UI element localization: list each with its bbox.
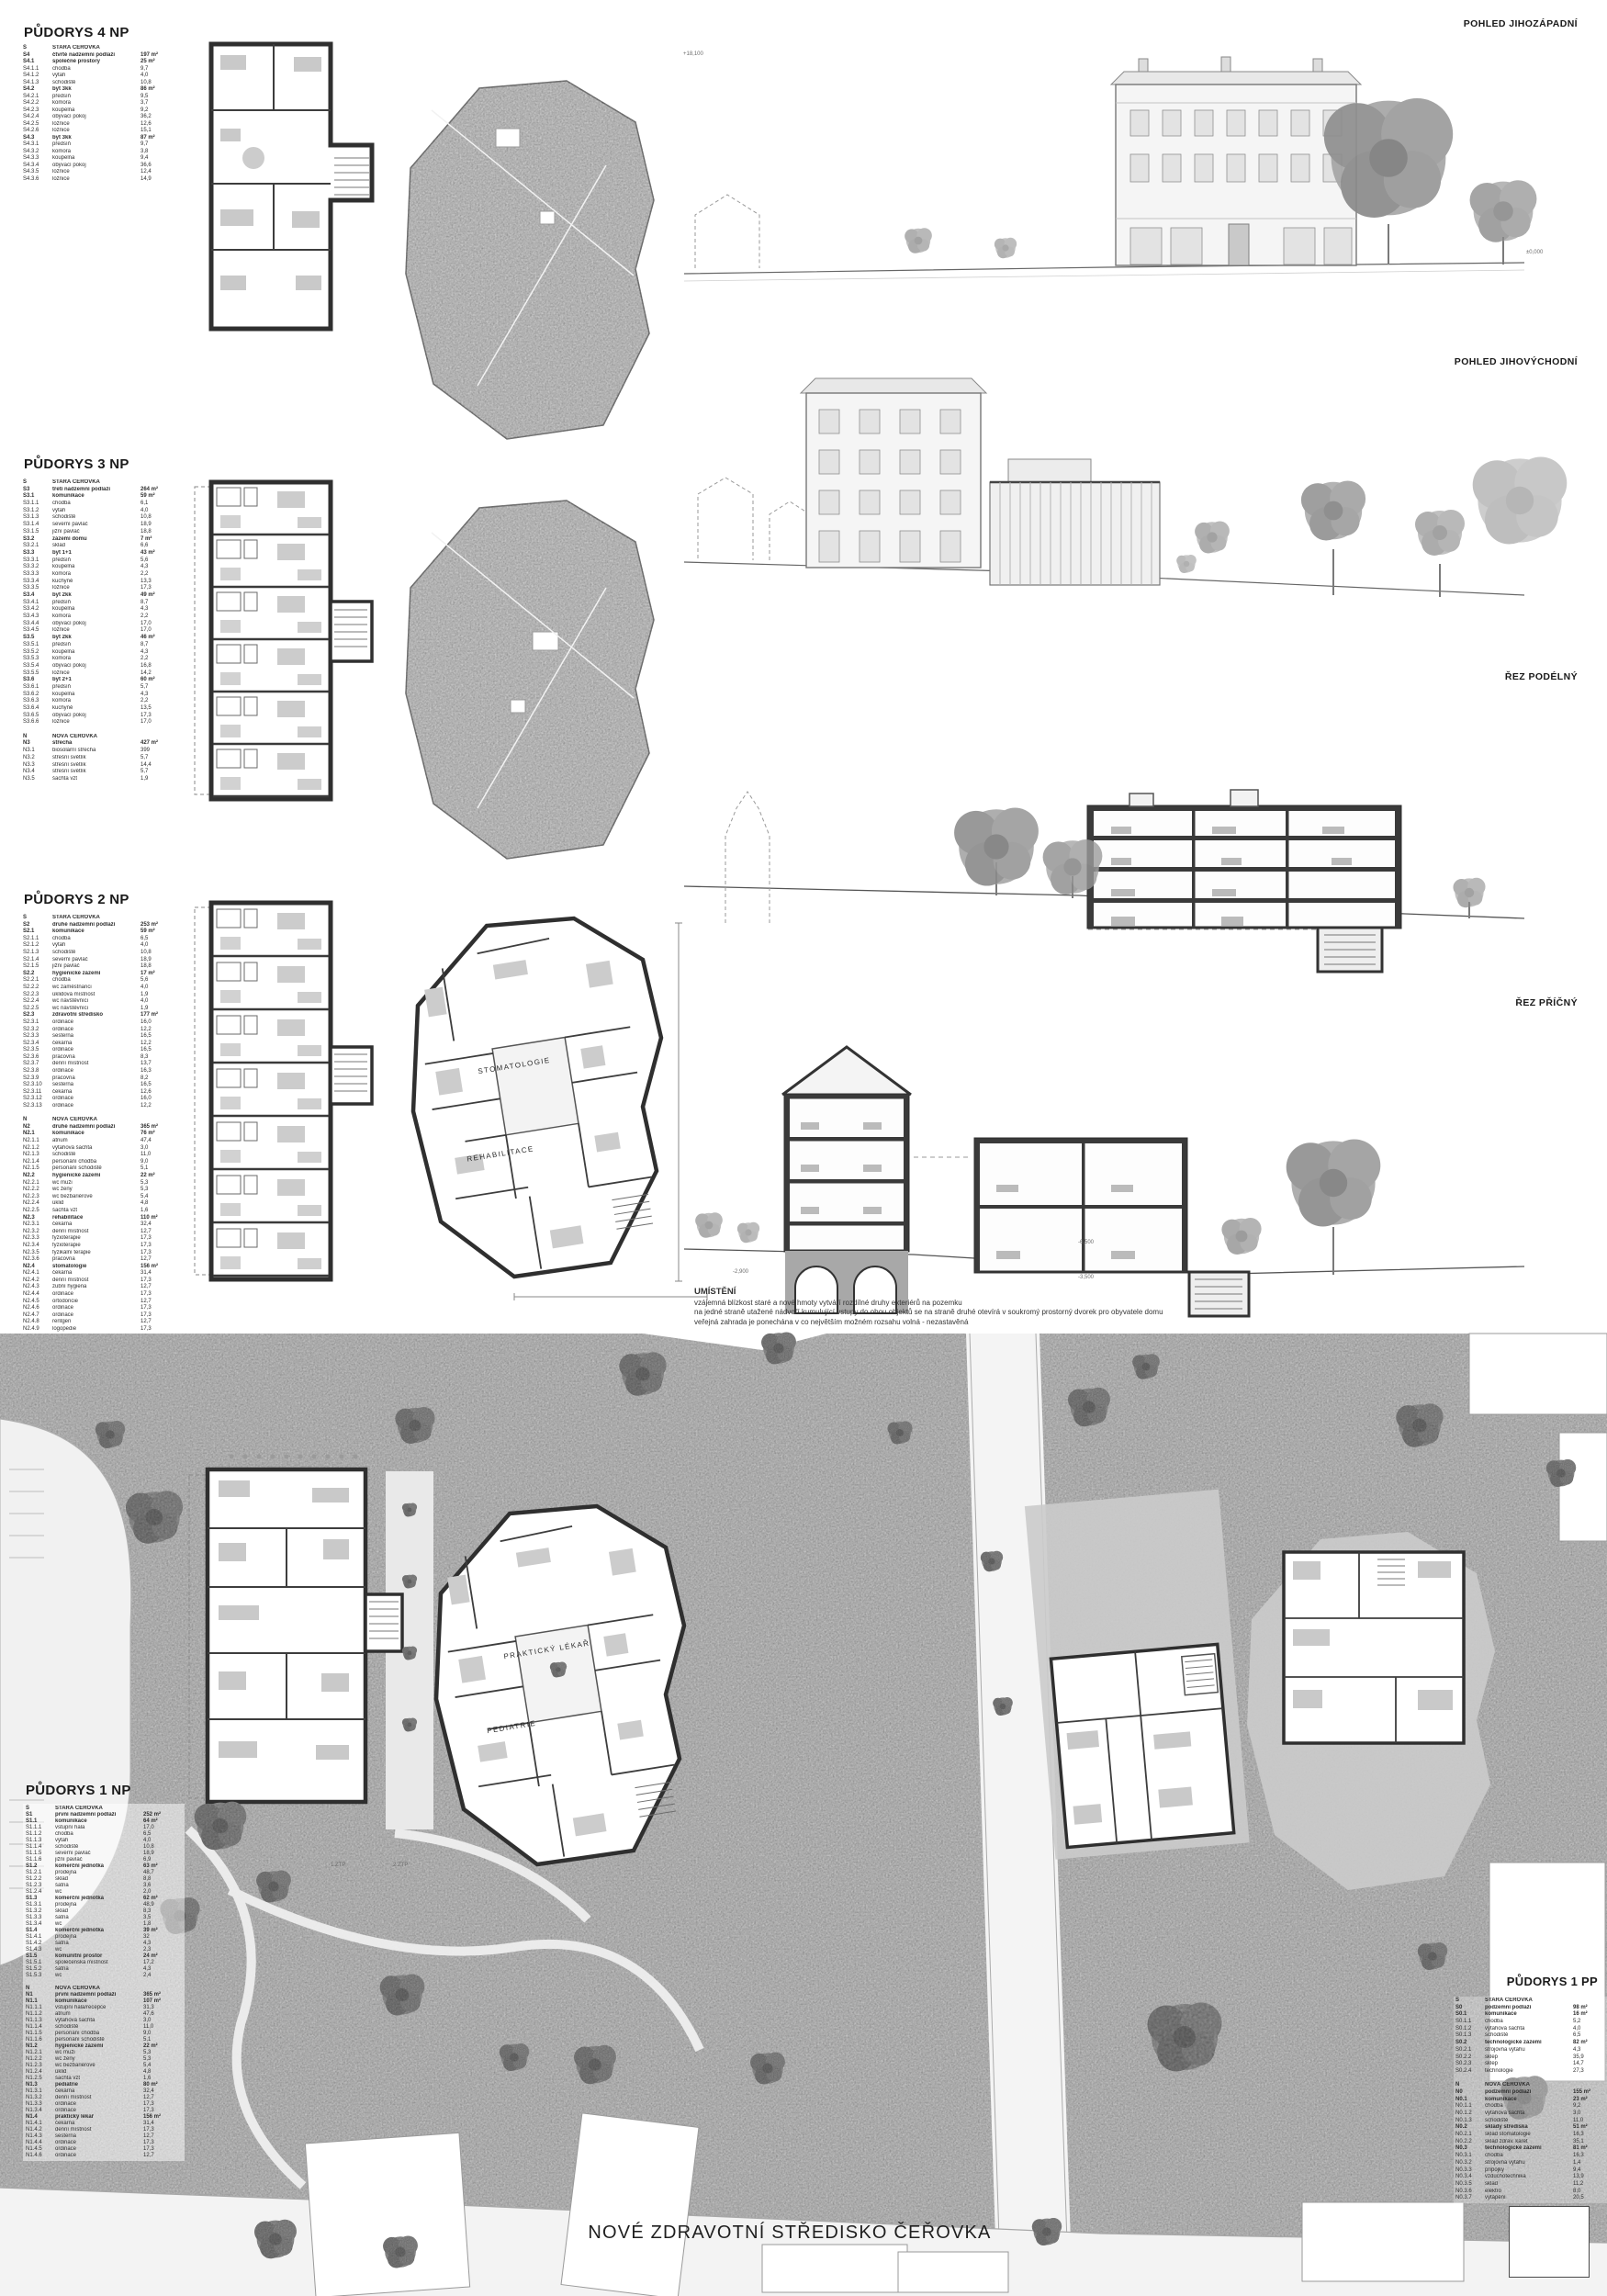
table-row: N1.4.2denní místnost17,3: [26, 2127, 182, 2133]
table-row: N2.3.4fyzioterapie17,3: [23, 1243, 179, 1250]
label-elevation-southeast: POHLED JIHOVÝCHODNÍ: [1455, 356, 1578, 367]
table-row: N2.4.7ordinace17,3: [23, 1312, 179, 1320]
table-row: S3.4.4obývací pokoj17,0: [23, 621, 179, 628]
table-row: S2.3zdravotní středisko177 m²: [23, 1012, 179, 1019]
table-row: S4.1.3schodiště10,8: [23, 80, 179, 87]
floor-plan-old-1pp: [1025, 1490, 1250, 1860]
room-table-1pp: SSTARÁ ČEŘOVKAS0podzemní podlaží98 m²S0.…: [1454, 1997, 1607, 2203]
table-row: S3.6.5obývací pokoj17,3: [23, 713, 179, 720]
table-row: N2.3rehabilitace110 m²: [23, 1215, 179, 1222]
table-row: N0.1.1chodba9,2: [1455, 2103, 1607, 2110]
table-row: S3.3.3komora2,2: [23, 571, 179, 579]
table-row: N2.3.3fyzioterapie17,3: [23, 1235, 179, 1243]
table-row: S1.1komunikace64 m²: [26, 1818, 182, 1825]
label-elevation-southwest: POHLED JIHOZÁPADNÍ: [1464, 18, 1578, 29]
table-row: S3.3.4kuchyně13,3: [23, 579, 179, 586]
table-row: N2.1.2výtahová šachta3,0: [23, 1145, 179, 1153]
table-row: S2.3.12ordinace16,0: [23, 1096, 179, 1103]
parking-label-ztp2: 2.ZTP: [393, 1863, 408, 1868]
site-plan: [0, 1333, 1607, 2296]
table-row: N3.4střešní světlík5,7: [23, 769, 179, 776]
table-row: S1.1.4schodiště10,8: [26, 1844, 182, 1851]
label-section-cross: ŘEZ PŘÍČNÝ: [1515, 997, 1578, 1008]
table-row: N2.2.5šachta vzt1,6: [23, 1208, 179, 1215]
table-row: NNOVÁ ČEŘOVKA: [23, 1117, 179, 1124]
table-row: S0.1.2výtahová šachta4,0: [1455, 2026, 1607, 2033]
table-row: SSTARÁ ČEŘOVKA: [26, 1806, 182, 1812]
sheet-title: NOVÉ ZDRAVOTNÍ STŘEDISKO ČEŘOVKA: [386, 2223, 1194, 2244]
siting-line-2: na jedné straně utažené nádvoří kumulují…: [694, 1308, 1319, 1318]
table-row: N1.1komunikace107 m²: [26, 1998, 182, 2005]
table-row: S2.2.3úklidová místnost1,9: [23, 992, 179, 999]
table-row: S0.2.1strojovna výtahu4,3: [1455, 2047, 1607, 2054]
table-row: N1.2.2wc ženy5,3: [26, 2056, 182, 2063]
heading-pudorys-1np: PŮDORYS 1 NP: [26, 1783, 131, 1798]
table-row: S1.5.3wc2,4: [26, 1973, 182, 1979]
table-row: S3.4.3komora2,2: [23, 613, 179, 621]
table-row: S1.5.1společenská místnost17,2: [26, 1960, 182, 1966]
floor-plan-new-1np: [432, 1506, 689, 1870]
table-row: S2.3.5ordinace16,5: [23, 1047, 179, 1054]
table-row: SSTARÁ ČEŘOVKA: [1455, 1998, 1607, 2005]
siting-line-3: veřejná zahrada je ponechána v co největ…: [694, 1318, 1319, 1328]
table-row: N1.3.3ordinace17,3: [26, 2101, 182, 2108]
table-row: N2.4.2denní místnost17,3: [23, 1277, 179, 1285]
table-row: N0.3.2strojovna výtahu1,4: [1455, 2160, 1607, 2167]
table-row: S0.2.4technologie27,3: [1455, 2068, 1607, 2076]
table-row: N1.4.3sesterna12,7: [26, 2133, 182, 2140]
table-row: S1.4.3wc2,3: [26, 1947, 182, 1953]
siting-line-1: vzájemná blízkost staré a nové hmoty vyt…: [694, 1299, 1319, 1309]
table-row: S1.1.5severní pavlač18,9: [26, 1851, 182, 1857]
table-row: N0.3.5sklad11,2: [1455, 2181, 1607, 2189]
table-row: N2druhé nadzemní podlaží365 m²: [23, 1124, 179, 1131]
table-row: N1.3.4ordinace17,3: [26, 2108, 182, 2114]
table-row: S0.2.3sklep14,7: [1455, 2061, 1607, 2068]
table-row: S1.3.2sklad8,3: [26, 1908, 182, 1915]
table-row: N2.3.5fyzikální terapie17,3: [23, 1250, 179, 1257]
table-row: SSTARÁ ČEŘOVKA: [23, 45, 179, 52]
table-row: N0.3.4vzduchotechnika13,9: [1455, 2174, 1607, 2181]
table-row: S3.2zázemí domu7 m²: [23, 536, 179, 544]
table-row: N3střecha427 m²: [23, 740, 179, 748]
table-row: N0.3.6elektro8,0: [1455, 2189, 1607, 2196]
table-row: N1.2.1wc muži5,3: [26, 2050, 182, 2056]
table-row: S3.5.5ložnice14,2: [23, 670, 179, 678]
table-row: N3.2střešní světlík5,7: [23, 755, 179, 762]
table-row: S3.6.3komora2,2: [23, 698, 179, 705]
table-row: N1první nadzemní podlaží365 m²: [26, 1992, 182, 1998]
table-row: N0.1.2výtahová šachta3,0: [1455, 2110, 1607, 2118]
table-row: N1.4.1čekárna31,4: [26, 2121, 182, 2127]
table-row: N2.4.3zubní hygiena12,7: [23, 1284, 179, 1291]
table-row: S2.3.13ordinace12,2: [23, 1103, 179, 1110]
table-row: S1.3.4wc1,8: [26, 1921, 182, 1928]
table-row: S1.1.3výtah4,0: [26, 1838, 182, 1844]
table-row: SSTARÁ ČEŘOVKA: [23, 915, 179, 922]
table-row: S1.3komerční jednotka62 m²: [26, 1896, 182, 1902]
table-row: S1.1.6jižní pavlač6,9: [26, 1857, 182, 1863]
table-row: S4.2byt 3kk86 m²: [23, 86, 179, 94]
room-table-3np: SSTARÁ ČEŘOVKAS3třetí nadzemní podlaží26…: [23, 479, 179, 783]
table-row: S3.5.2koupelna4,3: [23, 649, 179, 657]
table-row: S2.3.7denní místnost13,7: [23, 1061, 179, 1068]
table-row: S2.2.4wc návštěvníci4,0: [23, 998, 179, 1006]
table-row: S2.2.2wc zaměstnanci4,0: [23, 985, 179, 992]
roof-plan-3np: [406, 501, 654, 859]
table-row: S2.3.3sesterna16,5: [23, 1033, 179, 1041]
table-row: N1.1.5personání chodba9,0: [26, 2031, 182, 2037]
table-row: S3.3.2koupelna4,3: [23, 564, 179, 571]
table-row: S0.1.1chodba5,2: [1455, 2019, 1607, 2026]
table-row: S0.2technologické zázemí82 m²: [1455, 2040, 1607, 2047]
elevation-southeast: [684, 378, 1567, 597]
table-row: N2.2.4úklid4,8: [23, 1200, 179, 1208]
table-row: S0.1.3schodiště6,5: [1455, 2032, 1607, 2040]
siting-description: UMÍSTĚNÍ vzájemná blízkost staré a nové …: [694, 1288, 1319, 1327]
table-row: S4.2.6ložnice15,1: [23, 128, 179, 135]
table-row: S2.2hygienické zázemí17 m²: [23, 971, 179, 978]
table-row: S4.2.3koupelna9,2: [23, 107, 179, 115]
table-row: N2.2.1wc muži5,3: [23, 1180, 179, 1187]
table-row: N1.1.4schodiště11,0: [26, 2024, 182, 2031]
table-row-spacer: [1455, 2076, 1607, 2083]
table-row: S1.2.4wc2,0: [26, 1889, 182, 1896]
table-row: S4.2.4obývací pokoj36,2: [23, 114, 179, 121]
table-row: S2.1.1chodba6,5: [23, 936, 179, 943]
table-row: N0.3technologické zázemí81 m²: [1455, 2145, 1607, 2153]
table-row: S3.6.6ložnice17,0: [23, 719, 179, 726]
table-row: N1.2hygienické zázemí22 m²: [26, 2043, 182, 2050]
table-row: S1.4.2šatna4,3: [26, 1941, 182, 1947]
table-row: S3.1.2výtah4,0: [23, 508, 179, 515]
table-row: S3.5.3komora2,2: [23, 656, 179, 663]
table-row: S3.3.5ložnice17,3: [23, 585, 179, 592]
table-row: S3.3.1předsíň5,6: [23, 557, 179, 565]
level-marker: -6,500: [1078, 1240, 1094, 1245]
table-row: N1.4.4ordinace17,3: [26, 2140, 182, 2146]
heading-pudorys-3np: PŮDORYS 3 NP: [24, 456, 129, 472]
table-row: N1.1.2atrium47,6: [26, 2011, 182, 2018]
table-row: N1.2.4úklid4,8: [26, 2069, 182, 2076]
table-row: S2.1.4severní pavlač18,9: [23, 957, 179, 964]
table-row: N0.1komunikace23 m²: [1455, 2097, 1607, 2104]
floor-plan-new-1pp: [1247, 1532, 1495, 1890]
table-row: S4.3.5ložnice12,4: [23, 169, 179, 176]
table-row: N2.2hygienické zázemí22 m²: [23, 1173, 179, 1180]
table-row: SSTARÁ ČEŘOVKA: [23, 479, 179, 487]
level-marker: ±0,000: [1526, 250, 1543, 255]
table-row: S2.3.9pracovna8,2: [23, 1075, 179, 1083]
table-row: N2.2.2wc ženy5,3: [23, 1187, 179, 1194]
table-row: N1.1.1vstupní hala/recepce31,3: [26, 2005, 182, 2011]
table-row: NNOVÁ ČEŘOVKA: [1455, 2082, 1607, 2089]
table-row: S2.3.11čekárna12,6: [23, 1089, 179, 1097]
table-row: S3.5.1předsíň8,7: [23, 642, 179, 649]
table-row: S2.3.1ordinace16,0: [23, 1019, 179, 1027]
table-row: S2.1komunikace59 m²: [23, 929, 179, 936]
table-row: N2.3.1čekárna32,4: [23, 1221, 179, 1229]
table-row: S3.4.5ložnice17,0: [23, 627, 179, 635]
table-row: N0.3.3přípojky9,4: [1455, 2167, 1607, 2175]
table-row: N2.1.1atrium47,4: [23, 1138, 179, 1145]
floor-plan-old-4np: [211, 44, 372, 329]
table-row: S3.4byt 2kk49 m²: [23, 592, 179, 600]
presentation-board: PŮDORYS 4 NP SSTARÁ ČEŘOVKAS4čtvrté nadz…: [0, 0, 1607, 2296]
table-row: N2.4.8rentgen12,7: [23, 1319, 179, 1326]
table-row: N2.3.2denní místnost12,7: [23, 1229, 179, 1236]
level-marker: -3,500: [1078, 1275, 1094, 1280]
table-row: S2.1.3schodiště10,8: [23, 950, 179, 957]
table-row: S2.3.10sesterna16,5: [23, 1082, 179, 1089]
table-row: S1.3.3šatna3,5: [26, 1915, 182, 1921]
table-row: S1.2.2sklad8,8: [26, 1876, 182, 1883]
table-row: S1první nadzemní podlaží252 m²: [26, 1812, 182, 1818]
room-table-4np: SSTARÁ ČEŘOVKAS4čtvrté nadzemní podlaží1…: [23, 45, 179, 183]
table-row: S3.1.4severní pavlač18,9: [23, 522, 179, 529]
table-row: S3.1.5jižní pavlač18,8: [23, 529, 179, 536]
table-row: S4.3.1předsíň9,7: [23, 141, 179, 149]
table-row: N2.4.9logopedie17,3: [23, 1326, 179, 1334]
table-row: S3.4.2koupelna4,3: [23, 606, 179, 613]
table-row: S4.1společné prostory25 m²: [23, 59, 179, 66]
room-table-1np: SSTARÁ ČEŘOVKAS1první nadzemní podlaží25…: [23, 1804, 185, 2161]
table-row: N1.3pediatrie80 m²: [26, 2082, 182, 2088]
level-marker: -2,900: [733, 1269, 748, 1275]
table-row: N2.3.6pracovna12,7: [23, 1256, 179, 1264]
table-row: S4.2.1předsíň9,5: [23, 94, 179, 101]
section-longitudinal: [684, 790, 1524, 972]
table-row: N0.2.1sklad stomatologie16,3: [1455, 2132, 1607, 2139]
floor-plan-old-3np: [195, 482, 372, 799]
table-row: S4čtvrté nadzemní podlaží197 m²: [23, 52, 179, 60]
table-row-spacer: [23, 1110, 179, 1118]
table-row: N2.4stomatologie156 m²: [23, 1264, 179, 1271]
table-row: S4.3.6ložnice14,9: [23, 176, 179, 184]
table-row: S1.1.1vstupní hala17,0: [26, 1825, 182, 1831]
table-row-spacer: [23, 726, 179, 734]
table-row: S1.1.2chodba6,5: [26, 1831, 182, 1838]
heading-pudorys-1pp: PŮDORYS 1 PP: [1454, 1975, 1598, 1988]
siting-heading: UMÍSTĚNÍ: [694, 1288, 1319, 1298]
table-row: N2.1.3schodiště11,0: [23, 1152, 179, 1159]
table-row: S3.1.3schodiště10,8: [23, 514, 179, 522]
table-row: S0.1komunikace16 m²: [1455, 2011, 1607, 2019]
table-row: S4.3.4obývací pokoj36,6: [23, 163, 179, 170]
table-row: N3.3střešní světlík14,4: [23, 762, 179, 770]
table-row: NNOVÁ ČEŘOVKA: [26, 1986, 182, 1992]
parking-label-ztp1: 1.ZTP: [331, 1863, 345, 1868]
table-row: S3.6.1předsíň5,7: [23, 684, 179, 692]
table-row: N2.4.1čekárna31,4: [23, 1270, 179, 1277]
table-row: S1.4komerční jednotka39 m²: [26, 1928, 182, 1934]
table-row: S2.3.2ordinace12,2: [23, 1027, 179, 1034]
table-row: N0.3.1chodba16,3: [1455, 2153, 1607, 2160]
table-row: S2.3.4čekárna12,2: [23, 1041, 179, 1048]
table-row: S3.5byt 2kk46 m²: [23, 635, 179, 642]
table-row: S3třetí nadzemní podlaží264 m²: [23, 487, 179, 494]
label-section-longitudinal: ŘEZ PODÉLNÝ: [1505, 671, 1578, 682]
table-row: N3.1biosolární střecha399: [23, 748, 179, 755]
table-row: S1.2.3šatna3,6: [26, 1883, 182, 1889]
table-row: S3.1komunikace59 m²: [23, 493, 179, 501]
table-row: S2druhé nadzemní podlaží253 m²: [23, 922, 179, 929]
table-row: S3.3byt 1+143 m²: [23, 550, 179, 557]
table-row: N0.2sklady střediska51 m²: [1455, 2124, 1607, 2132]
table-row: S1.2komerční jednotka63 m²: [26, 1863, 182, 1870]
table-row: N2.1.4personání chodba9,0: [23, 1159, 179, 1166]
table-row: N2.2.3wc bezbariérové5,4: [23, 1194, 179, 1201]
table-row: S2.3.8ordinace16,3: [23, 1068, 179, 1075]
table-row: S4.1.1chodba9,7: [23, 66, 179, 73]
table-row: N2.4.6ordinace17,3: [23, 1305, 179, 1312]
table-row: S2.1.2výtah4,0: [23, 942, 179, 950]
table-row: N1.4.6ordinace12,7: [26, 2153, 182, 2159]
table-row: S3.5.4obývací pokoj16,8: [23, 663, 179, 670]
table-row: N2.1komunikace76 m²: [23, 1131, 179, 1138]
table-row: N0podzemní podlaží155 m²: [1455, 2089, 1607, 2097]
table-row: N1.2.5šachta vzt1,6: [26, 2076, 182, 2082]
table-row: N1.3.2denní místnost12,7: [26, 2095, 182, 2101]
table-row: S4.3.3koupelna9,4: [23, 155, 179, 163]
table-row: S4.2.5ložnice12,6: [23, 121, 179, 129]
table-row: S0.2.2sklep35,9: [1455, 2054, 1607, 2062]
heading-pudorys-4np: PŮDORYS 4 NP: [24, 25, 129, 40]
table-row: N1.1.6personání schodiště5,1: [26, 2037, 182, 2043]
sheet-drawings: [0, 0, 1607, 2296]
table-row: N0.3.7vytápění20,5: [1455, 2195, 1607, 2202]
table-row: S3.6.2koupelna4,3: [23, 692, 179, 699]
table-row: S4.1.2výtah4,0: [23, 73, 179, 80]
table-row: S3.2.1sklad6,6: [23, 543, 179, 550]
roof-plan-4np: [406, 81, 654, 439]
table-row: N1.1.3výtahová šachta3,0: [26, 2018, 182, 2024]
table-row: N1.3.1čekárna32,4: [26, 2088, 182, 2095]
table-row: S3.1.1chodba6,1: [23, 501, 179, 508]
table-row: N2.1.5personání schodiště5,1: [23, 1165, 179, 1173]
table-row: S2.2.1chodba5,6: [23, 977, 179, 985]
table-row: S3.6byt 2+160 m²: [23, 677, 179, 684]
heading-pudorys-2np: PŮDORYS 2 NP: [24, 892, 129, 907]
table-row: S1.2.1prodejna48,7: [26, 1870, 182, 1876]
table-row: S1.5.2šatna4,3: [26, 1966, 182, 1973]
table-row: S2.1.5jižní pavlač18,8: [23, 963, 179, 971]
table-row: S4.3byt 3kk87 m²: [23, 135, 179, 142]
table-row-spacer: [26, 1979, 182, 1986]
section-cross: [684, 1047, 1524, 1316]
title-block: [1509, 2206, 1590, 2278]
floor-plan-new-2np: [409, 918, 682, 1282]
table-row: S1.5komunitní prostor24 m²: [26, 1953, 182, 1960]
table-row: S3.4.1předsíň8,7: [23, 600, 179, 607]
elevation-southwest: [684, 57, 1536, 281]
table-row: N2.4.5ortodoncie12,7: [23, 1299, 179, 1306]
table-row: N1.4.5ordinace17,3: [26, 2146, 182, 2153]
table-row: N1.2.3wc bezbariérové5,4: [26, 2063, 182, 2069]
room-table-2np: SSTARÁ ČEŘOVKAS2druhé nadzemní podlaží25…: [23, 915, 179, 1334]
table-row: S1.4.1prodejna32: [26, 1934, 182, 1941]
table-row: S2.3.6pracovna8,3: [23, 1054, 179, 1062]
level-marker: +18,100: [683, 51, 703, 57]
table-row: S1.3.1prodejna48,9: [26, 1902, 182, 1908]
table-row: S4.3.2komora3,8: [23, 149, 179, 156]
table-row: S3.6.4kuchyně13,5: [23, 705, 179, 713]
table-row: N2.4.4ordinace17,3: [23, 1291, 179, 1299]
table-row: N3.5šachta vzt1,9: [23, 776, 179, 783]
table-row: S4.2.2komora3,7: [23, 100, 179, 107]
table-row: N1.4praktický lékař156 m²: [26, 2114, 182, 2121]
